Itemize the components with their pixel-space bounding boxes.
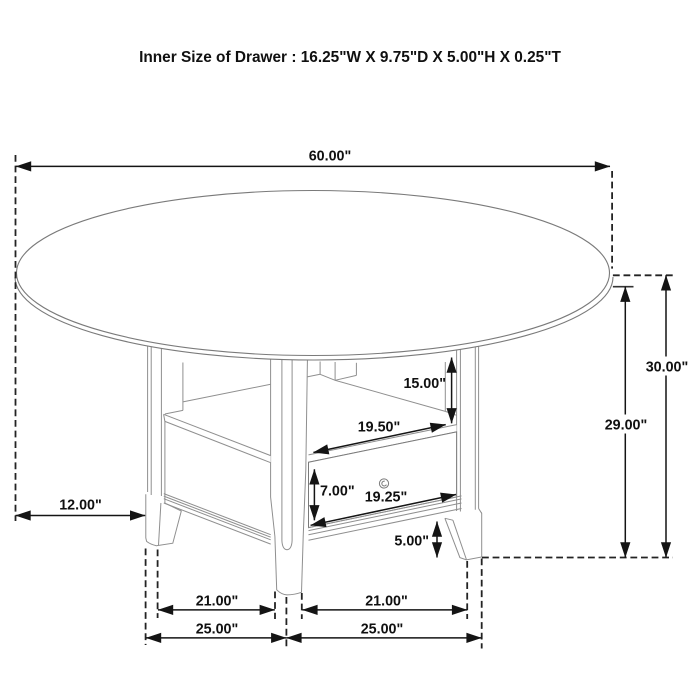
svg-text:19.25": 19.25" (365, 490, 408, 506)
svg-text:19.50": 19.50" (358, 420, 401, 436)
svg-text:15.00": 15.00" (403, 376, 446, 392)
svg-text:21.00": 21.00" (365, 594, 408, 610)
svg-text:7.00": 7.00" (320, 484, 355, 500)
svg-text:12.00": 12.00" (59, 498, 102, 514)
svg-text:5.00": 5.00" (394, 534, 429, 550)
svg-text:21.00": 21.00" (196, 594, 239, 610)
svg-text:30.00": 30.00" (646, 360, 689, 376)
svg-text:25.00": 25.00" (196, 622, 239, 638)
svg-text:29.00": 29.00" (605, 418, 648, 434)
svg-text:25.00": 25.00" (361, 622, 404, 638)
svg-text:60.00": 60.00" (309, 149, 352, 165)
